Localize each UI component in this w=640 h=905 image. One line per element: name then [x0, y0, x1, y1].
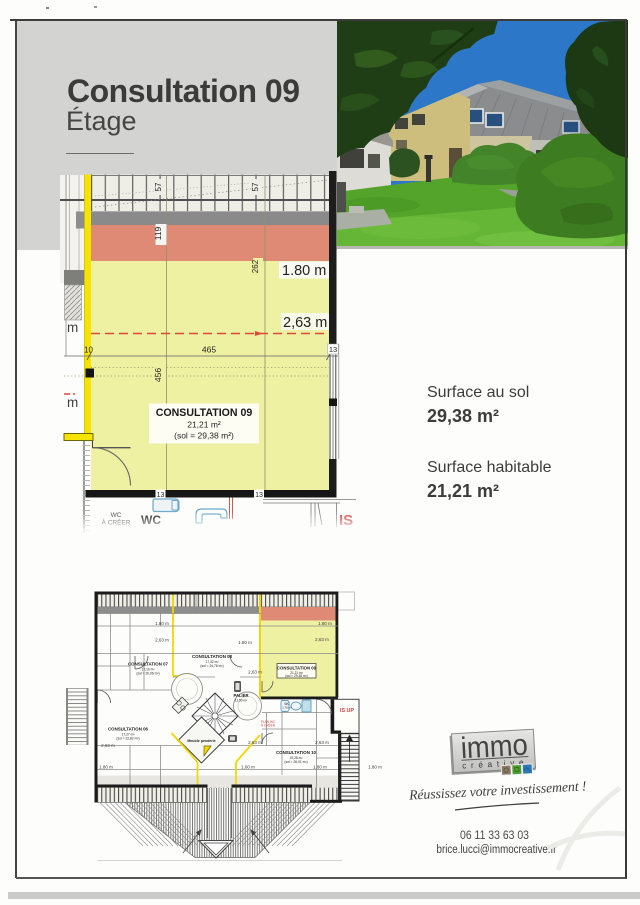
svg-text:2,63 m: 2,63 m [248, 670, 262, 675]
svg-text:13: 13 [329, 345, 337, 354]
svg-text:57: 57 [251, 182, 260, 191]
svg-text:465: 465 [202, 345, 216, 355]
svg-text:(sol = 22,82 m²): (sol = 22,82 m²) [116, 737, 139, 741]
svg-text:IS UP: IS UP [340, 708, 354, 714]
svg-text:À CRÉER: À CRÉER [261, 723, 276, 728]
svg-text:57: 57 [154, 182, 163, 191]
svg-text:2,63 m: 2,63 m [155, 638, 169, 643]
svg-text:13: 13 [157, 492, 165, 499]
svg-text:CONSULTATION 08: CONSULTATION 08 [192, 654, 233, 659]
svg-text:PALIER: PALIER [233, 693, 248, 698]
svg-text:CONSULTATION 09: CONSULTATION 09 [156, 407, 253, 419]
svg-text:(sol = 26,01 m²): (sol = 26,01 m²) [284, 760, 307, 764]
svg-text:CONSULTATION 06: CONSULTATION 06 [108, 727, 149, 732]
svg-text:1.80 m: 1.80 m [238, 640, 252, 645]
svg-text:2,63 m: 2,63 m [283, 315, 327, 331]
svg-text:(sol = 29,38 m²): (sol = 29,38 m²) [174, 431, 234, 441]
svg-text:CONSULTATION 07: CONSULTATION 07 [128, 662, 169, 667]
svg-text:11,50 m²: 11,50 m² [235, 699, 247, 703]
svg-text:1.60 m: 1.60 m [241, 764, 255, 769]
svg-text:119: 119 [153, 226, 163, 240]
svg-text:Meuble penderie: Meuble penderie [187, 739, 215, 743]
svg-text:1.80 m: 1.80 m [313, 764, 327, 769]
svg-text:CONSULTATION 09: CONSULTATION 09 [277, 666, 317, 671]
svg-text:m: m [67, 320, 78, 335]
svg-text:(sol = 20,06 m²): (sol = 20,06 m²) [136, 672, 159, 676]
svg-text:2,63 m: 2,63 m [101, 743, 115, 748]
svg-text:262: 262 [251, 259, 260, 273]
svg-text:2,63 m: 2,63 m [315, 740, 329, 745]
svg-text:1.80 m: 1.80 m [318, 621, 332, 626]
svg-text:m: m [67, 395, 78, 410]
svg-text:21,21 m²: 21,21 m² [187, 420, 221, 430]
svg-text:1,70 m²: 1,70 m² [282, 706, 292, 710]
svg-text:(sol = 24,76 m²): (sol = 24,76 m²) [200, 664, 223, 668]
svg-text:1.80 m: 1.80 m [99, 764, 113, 769]
svg-text:(sol = 29,38 m²): (sol = 29,38 m²) [285, 674, 307, 678]
svg-text:2,63 m: 2,63 m [315, 637, 329, 642]
svg-text:456: 456 [153, 368, 163, 382]
svg-text:1.80 m: 1.80 m [282, 263, 326, 279]
svg-text:10: 10 [84, 346, 93, 355]
svg-text:1.80 m: 1.80 m [368, 764, 382, 769]
svg-text:13: 13 [255, 492, 263, 499]
svg-text:2.63 m: 2.63 m [248, 740, 262, 745]
svg-text:CONSULTATION 10: CONSULTATION 10 [276, 750, 317, 755]
svg-text:1.80 m: 1.80 m [155, 621, 169, 626]
